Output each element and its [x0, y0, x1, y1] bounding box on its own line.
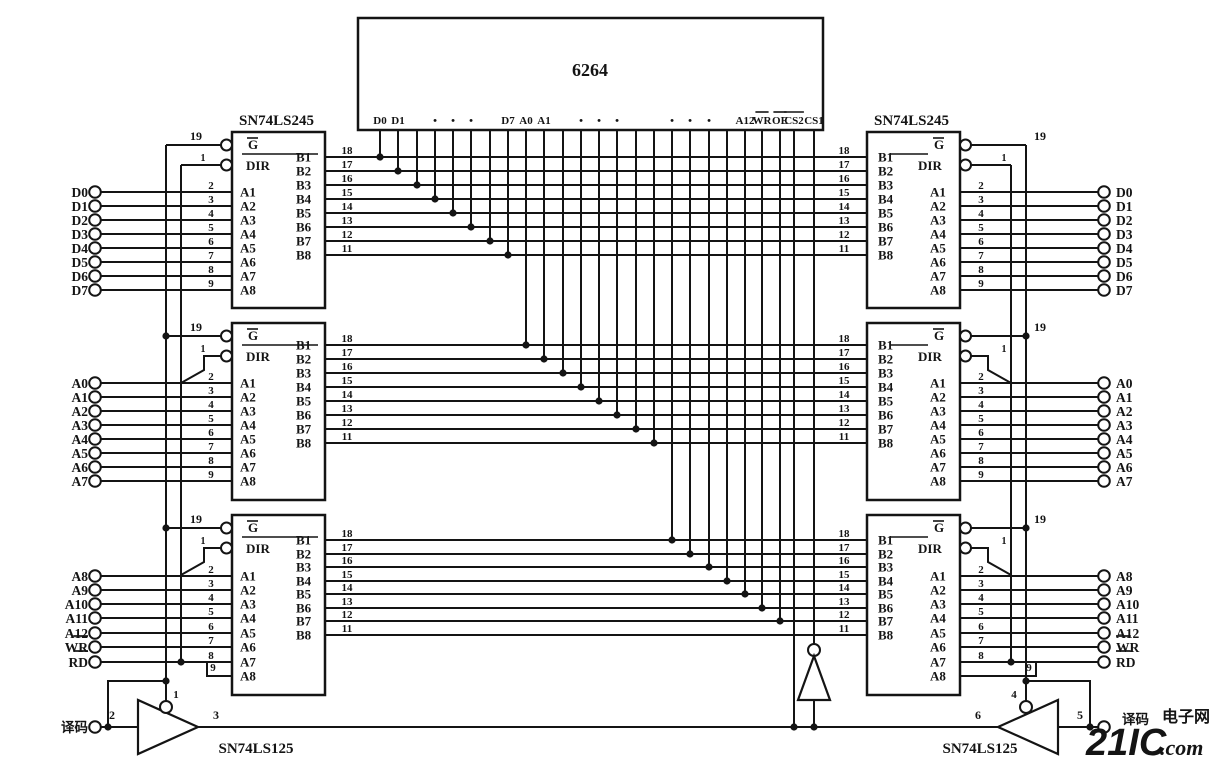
chip-a-pin-label: A1 — [240, 376, 256, 391]
bus-pin-number: 18 — [342, 145, 354, 157]
enable-pin-number: 19 — [1034, 129, 1046, 143]
terminal-circle — [1098, 228, 1110, 240]
chip-dir-label: DIR — [918, 158, 942, 173]
terminal-circle — [89, 284, 101, 296]
a-pin-number: 4 — [208, 208, 214, 220]
chip-a-pin-label: A1 — [240, 185, 256, 200]
chip-a-pin-label: A6 — [930, 640, 946, 655]
memory-pin-label: • — [579, 115, 583, 127]
enable-bubble — [960, 140, 971, 151]
memory-pin-label: • — [469, 115, 473, 127]
driver-pin-number: 2 — [109, 708, 115, 722]
chip-dir-label: DIR — [246, 541, 270, 556]
terminal-circle — [1098, 270, 1110, 282]
chip-b-pin-label: B1 — [296, 533, 311, 548]
terminal-circle — [89, 584, 101, 596]
junction-dot — [486, 237, 493, 244]
high-address-terminal-label: WR — [1116, 640, 1140, 655]
junction-dot — [686, 550, 693, 557]
chip-a-pin-label: A6 — [240, 446, 256, 461]
a-pin-number: 5 — [208, 222, 214, 234]
bus-pin-number: 18 — [342, 528, 354, 540]
dir-pin-number: 1 — [201, 344, 206, 355]
bus-pin-number: 18 — [839, 528, 851, 540]
terminal-circle — [1098, 584, 1110, 596]
chip-a-pin-label: A1 — [930, 569, 946, 584]
driver-pin-number: 1 — [173, 689, 179, 701]
data-terminal-label: D6 — [72, 269, 89, 284]
terminal-circle — [89, 270, 101, 282]
bus-pin-number: 17 — [342, 347, 354, 359]
dir-pin-number: 1 — [201, 536, 206, 547]
address-terminal-label: A6 — [1116, 460, 1133, 475]
enable-bubble — [221, 523, 232, 534]
decode-terminal-label: 译码 — [61, 720, 88, 736]
chip-a-pin-label: A7 — [240, 655, 256, 670]
terminal-circle — [1098, 656, 1110, 668]
junction-dot — [632, 425, 639, 432]
memory-pin-label: • — [688, 115, 692, 127]
high-address-terminal-label: A11 — [1116, 611, 1139, 626]
chip-a-pin-label: A8 — [930, 474, 946, 489]
high-address-terminal-label: A10 — [65, 597, 88, 612]
a-pin-number: 8 — [208, 264, 214, 276]
chip-b-pin-label: B5 — [296, 394, 312, 409]
terminal-circle — [89, 641, 101, 653]
junction-dot — [650, 439, 657, 446]
chip-a-pin-label: A7 — [930, 269, 946, 284]
memory-chip-title: 6264 — [572, 60, 608, 80]
chip-b-pin-label: B2 — [296, 352, 311, 367]
a-pin-number: 4 — [208, 592, 214, 604]
junction-dot — [758, 604, 765, 611]
chip-b-pin-label: B5 — [878, 394, 894, 409]
enable-pin-number: 19 — [1034, 512, 1046, 526]
dir-pin-hook — [971, 356, 1011, 383]
watermark-logo: 21IC — [1085, 722, 1167, 764]
chip-enable-label: G — [248, 328, 258, 343]
driver-pin-number: 4 — [1011, 689, 1017, 701]
memory-pin-label: • — [707, 115, 711, 127]
bus-pin-number: 17 — [839, 542, 851, 554]
address-terminal-label: A7 — [1116, 474, 1133, 489]
chip-a-pin-label: A1 — [930, 185, 946, 200]
data-terminal-label: D1 — [72, 199, 89, 214]
data-terminal-label: D3 — [72, 227, 89, 242]
terminal-circle — [89, 475, 101, 487]
a-pin-number: 8 — [978, 264, 984, 276]
driver-chip-title: SN74LS125 — [218, 741, 293, 757]
a-pin-number: 4 — [208, 399, 214, 411]
chip-b-pin-label: B3 — [296, 560, 312, 575]
chip-b-pin-label: B1 — [878, 533, 893, 548]
a-pin-number: 3 — [978, 385, 984, 397]
data-terminal-label: D6 — [1116, 269, 1133, 284]
terminal-circle — [89, 721, 101, 733]
memory-pin-label: • — [670, 115, 674, 127]
transceiver-chip-title: SN74LS245 — [874, 113, 949, 129]
chip-b-pin-label: B4 — [296, 192, 312, 207]
data-terminal-label: D5 — [1116, 255, 1133, 270]
chip-a-pin-label: A4 — [930, 418, 946, 433]
address-terminal-label: A3 — [1116, 418, 1133, 433]
chip-b-pin-label: B5 — [878, 587, 894, 602]
chip-b-pin-label: B8 — [878, 248, 894, 263]
bus-pin-number: 15 — [342, 569, 354, 581]
data-terminal-label: D7 — [72, 283, 89, 298]
terminal-circle — [1098, 433, 1110, 445]
data-terminal-label: D1 — [1116, 199, 1133, 214]
address-terminal-label: A4 — [1116, 432, 1133, 447]
junction-dot — [559, 369, 566, 376]
a-pin-number: 2 — [208, 180, 214, 192]
data-terminal-label: D0 — [72, 185, 89, 200]
bus-pin-number: 17 — [839, 159, 851, 171]
chip-b-pin-label: B6 — [878, 408, 894, 423]
bus-pin-number: 11 — [342, 243, 352, 255]
junction-dot — [376, 153, 383, 160]
chip-b-pin-label: B6 — [878, 220, 894, 235]
watermark-com: .com — [1160, 735, 1203, 760]
junction-dot — [431, 195, 438, 202]
bus-pin-number: 17 — [342, 159, 354, 171]
terminal-circle — [89, 200, 101, 212]
bus-pin-number: 15 — [839, 375, 851, 387]
address-terminal-label: A0 — [72, 376, 89, 391]
address-terminal-label: A1 — [1116, 390, 1133, 405]
chip-enable-label: G — [934, 520, 944, 535]
terminal-circle — [1098, 641, 1110, 653]
chip-b-pin-label: B3 — [296, 366, 312, 381]
chip-dir-label: DIR — [246, 158, 270, 173]
terminal-circle — [1098, 405, 1110, 417]
enable-bubble — [960, 523, 971, 534]
chip-a-pin-label: A4 — [240, 611, 256, 626]
chip-a-pin-label: A4 — [240, 418, 256, 433]
a-pin-number: 8 — [208, 650, 214, 662]
bus-pin-number: 16 — [342, 173, 354, 185]
a-pin-number: 7 — [208, 441, 214, 453]
high-address-terminal-label: A11 — [65, 611, 88, 626]
terminal-circle — [89, 405, 101, 417]
dir-pin-number: 1 — [1002, 536, 1007, 547]
terminal-circle — [1098, 377, 1110, 389]
right-driver-enable-bubble — [1020, 701, 1032, 713]
bus-pin-number: 13 — [342, 403, 354, 415]
junction-dot — [668, 536, 675, 543]
a-pin-number: 9 — [208, 278, 214, 290]
memory-pin-label: • — [615, 115, 619, 127]
chip-a-pin-label: A2 — [240, 583, 256, 598]
chip-a-pin-label: A8 — [240, 669, 256, 684]
terminal-circle — [1098, 391, 1110, 403]
a-pin-number: 9 — [1026, 662, 1032, 674]
junction-dot — [741, 590, 748, 597]
a-pin-number: 9 — [978, 278, 984, 290]
terminal-circle — [1098, 200, 1110, 212]
bus-pin-number: 13 — [839, 215, 851, 227]
chip-b-pin-label: B7 — [878, 234, 894, 249]
bus-pin-number: 13 — [839, 403, 851, 415]
a-pin-number: 2 — [208, 371, 214, 383]
junction-dot — [522, 341, 529, 348]
memory-pin-label: • — [597, 115, 601, 127]
terminal-circle — [89, 214, 101, 226]
terminal-circle — [89, 461, 101, 473]
bus-pin-number: 17 — [342, 542, 354, 554]
terminal-circle — [1098, 461, 1110, 473]
junction-dot — [540, 355, 547, 362]
chip-enable-label: G — [934, 328, 944, 343]
bus-pin-number: 13 — [839, 596, 851, 608]
terminal-circle — [89, 447, 101, 459]
a-pin-number: 7 — [208, 635, 214, 647]
address-terminal-label: A5 — [1116, 446, 1133, 461]
terminal-circle — [89, 256, 101, 268]
bus-pin-number: 13 — [342, 596, 354, 608]
terminal-circle — [1098, 612, 1110, 624]
chip-b-pin-label: B5 — [878, 206, 894, 221]
bus-pin-number: 16 — [839, 361, 851, 373]
junction-dot — [723, 577, 730, 584]
bus-pin-number: 12 — [839, 417, 851, 429]
bus-pin-number: 15 — [839, 187, 851, 199]
data-terminal-label: D3 — [1116, 227, 1133, 242]
chip-a-pin-label: A2 — [930, 199, 946, 214]
a-pin-number: 8 — [978, 455, 984, 467]
bus-pin-number: 16 — [839, 173, 851, 185]
schematic-page: 6264D0D1•••D7A0A1••••••A12WROECS2CS11818… — [0, 0, 1231, 769]
address-terminal-label: A7 — [72, 474, 89, 489]
high-address-terminal-label: WR — [65, 640, 89, 655]
chip-a-pin-label: A7 — [930, 460, 946, 475]
chip-a-pin-label: A6 — [930, 446, 946, 461]
terminal-circle — [1098, 284, 1110, 296]
chip-enable-label: G — [248, 520, 258, 535]
chip-a-pin-label: A8 — [240, 283, 256, 298]
bus-pin-number: 14 — [342, 201, 354, 213]
address-terminal-label: A5 — [72, 446, 89, 461]
memory-pin-label: D0 — [373, 115, 387, 127]
bus-pin-number: 12 — [342, 609, 354, 621]
enable-pin-number: 19 — [190, 320, 202, 334]
terminal-circle — [1098, 447, 1110, 459]
dir-bubble — [960, 160, 971, 171]
a-pin-number: 5 — [208, 606, 214, 618]
terminal-circle — [1098, 186, 1110, 198]
chip-a-pin-label: A2 — [930, 390, 946, 405]
bus-pin-number: 15 — [839, 569, 851, 581]
terminal-circle — [89, 598, 101, 610]
data-terminal-label: D2 — [1116, 213, 1133, 228]
chip-b-pin-label: B8 — [296, 436, 312, 451]
chip-enable-label: G — [248, 137, 258, 152]
data-terminal-label: D2 — [72, 213, 89, 228]
chip-a-pin-label: A3 — [240, 597, 256, 612]
chip-a-pin-label: A4 — [240, 227, 256, 242]
pin9-stub-wire — [960, 662, 1036, 676]
chip-b-pin-label: B8 — [296, 628, 312, 643]
terminal-circle — [1098, 214, 1110, 226]
inverter-triangle — [798, 656, 830, 700]
high-address-terminal-label: A10 — [1116, 597, 1139, 612]
a-pin-number: 8 — [978, 650, 984, 662]
dir-pin-number: 1 — [1002, 153, 1007, 164]
dir-bubble — [221, 543, 232, 554]
chip-b-pin-label: B4 — [296, 380, 312, 395]
bus-pin-number: 16 — [342, 361, 354, 373]
address-terminal-label: A3 — [72, 418, 89, 433]
a-pin-number: 4 — [978, 399, 984, 411]
chip-a-pin-label: A7 — [240, 269, 256, 284]
memory-pin-label: D7 — [501, 115, 515, 127]
a-pin-number: 3 — [978, 578, 984, 590]
chip-b-pin-label: B3 — [878, 366, 894, 381]
address-terminal-label: A1 — [72, 390, 89, 405]
bus-pin-number: 15 — [342, 187, 354, 199]
terminal-circle — [1098, 419, 1110, 431]
chip-b-pin-label: B7 — [878, 614, 894, 629]
junction-dot — [577, 383, 584, 390]
chip-a-pin-label: A3 — [240, 404, 256, 419]
high-address-terminal-label: A12 — [1116, 626, 1139, 641]
chip-b-pin-label: B8 — [878, 436, 894, 451]
a-pin-number: 9 — [978, 469, 984, 481]
memory-pin-label: • — [451, 115, 455, 127]
chip-a-pin-label: A3 — [930, 597, 946, 612]
a-pin-number: 9 — [208, 469, 214, 481]
transceiver-chip-title: SN74LS245 — [239, 113, 314, 129]
memory-pin-label: A0 — [519, 115, 533, 127]
chip-b-pin-label: B7 — [296, 422, 312, 437]
a-pin-number: 6 — [208, 236, 214, 248]
chip-b-pin-label: B3 — [878, 560, 894, 575]
bus-pin-number: 12 — [839, 229, 851, 241]
bus-pin-number: 13 — [342, 215, 354, 227]
enable-pin-number: 19 — [190, 129, 202, 143]
chip-a-pin-label: A8 — [930, 283, 946, 298]
dir-bubble — [960, 543, 971, 554]
terminal-circle — [89, 570, 101, 582]
dir-pin-hook — [181, 356, 221, 383]
chip-a-pin-label: A5 — [930, 626, 946, 641]
chip-b-pin-label: B8 — [878, 628, 894, 643]
chip-a-pin-label: A1 — [930, 376, 946, 391]
junction-dot — [394, 167, 401, 174]
terminal-circle — [89, 228, 101, 240]
chip-b-pin-label: B4 — [878, 192, 894, 207]
bus-pin-number: 11 — [839, 431, 849, 443]
a-pin-number: 5 — [208, 413, 214, 425]
a-pin-number: 3 — [208, 385, 214, 397]
bus-pin-number: 16 — [342, 555, 354, 567]
a-pin-number: 5 — [978, 606, 984, 618]
a-pin-number: 9 — [210, 662, 216, 674]
bus-pin-number: 12 — [342, 229, 354, 241]
dir-bubble — [960, 351, 971, 362]
terminal-circle — [89, 242, 101, 254]
terminal-circle — [1098, 475, 1110, 487]
chip-b-pin-label: B3 — [296, 178, 312, 193]
chip-a-pin-label: A3 — [930, 404, 946, 419]
junction-dot — [705, 563, 712, 570]
a-pin-number: 6 — [978, 236, 984, 248]
terminal-circle — [89, 656, 101, 668]
watermark-cjk: 电子网 — [1162, 707, 1210, 726]
chip-a-pin-label: A7 — [240, 460, 256, 475]
bus-pin-number: 18 — [839, 145, 851, 157]
a-pin-number: 6 — [208, 427, 214, 439]
dir-bubble — [221, 160, 232, 171]
terminal-circle — [89, 419, 101, 431]
memory-pin-label: CS2 — [784, 115, 804, 127]
chip-b-pin-label: B8 — [296, 248, 312, 263]
chip-a-pin-label: A8 — [930, 669, 946, 684]
chip-b-pin-label: B6 — [296, 408, 312, 423]
terminal-circle — [89, 612, 101, 624]
chip-a-pin-label: A8 — [240, 474, 256, 489]
chip-b-pin-label: B5 — [296, 587, 312, 602]
a-pin-number: 4 — [978, 592, 984, 604]
bus-pin-number: 15 — [342, 375, 354, 387]
a-pin-number: 7 — [208, 250, 214, 262]
terminal-circle — [89, 391, 101, 403]
a-pin-number: 5 — [978, 413, 984, 425]
chip-a-pin-label: A7 — [930, 655, 946, 670]
address-terminal-label: A4 — [72, 432, 89, 447]
high-address-terminal-label: A9 — [1116, 583, 1133, 598]
bus-pin-number: 16 — [839, 555, 851, 567]
chip-a-pin-label: A2 — [240, 199, 256, 214]
terminal-circle — [1098, 570, 1110, 582]
data-terminal-label: D0 — [1116, 185, 1133, 200]
data-terminal-label: D7 — [1116, 283, 1133, 298]
chip-b-pin-label: B4 — [878, 380, 894, 395]
terminal-circle — [89, 627, 101, 639]
chip-b-pin-label: B2 — [878, 164, 893, 179]
chip-b-pin-label: B3 — [878, 178, 894, 193]
chip-a-pin-label: A3 — [240, 213, 256, 228]
memory-pin-label: D1 — [391, 115, 404, 127]
terminal-circle — [89, 433, 101, 445]
bus-pin-number: 18 — [839, 333, 851, 345]
bus-pin-number: 14 — [839, 201, 851, 213]
chip-a-pin-label: A5 — [240, 432, 256, 447]
driver-pin-number: 3 — [213, 708, 219, 722]
enable-bubble — [221, 140, 232, 151]
memory-pin-label: A1 — [537, 115, 550, 127]
bus-pin-number: 14 — [839, 582, 851, 594]
terminal-circle — [89, 377, 101, 389]
a-pin-number: 3 — [208, 578, 214, 590]
chip-dir-label: DIR — [918, 541, 942, 556]
data-terminal-label: D4 — [72, 241, 89, 256]
chip-a-pin-label: A6 — [240, 255, 256, 270]
chip-dir-label: DIR — [246, 349, 270, 364]
chip-a-pin-label: A4 — [930, 227, 946, 242]
memory-pin-label: WR — [753, 115, 773, 127]
chip-b-pin-label: B2 — [296, 164, 311, 179]
enable-bubble — [960, 331, 971, 342]
chip-dir-label: DIR — [918, 349, 942, 364]
a-pin-number: 8 — [208, 455, 214, 467]
bus-pin-number: 18 — [342, 333, 354, 345]
junction-dot — [504, 251, 511, 258]
a-pin-number: 3 — [978, 194, 984, 206]
bus-pin-number: 11 — [342, 623, 352, 635]
a-pin-number: 7 — [978, 635, 984, 647]
bus-pin-number: 14 — [839, 389, 851, 401]
